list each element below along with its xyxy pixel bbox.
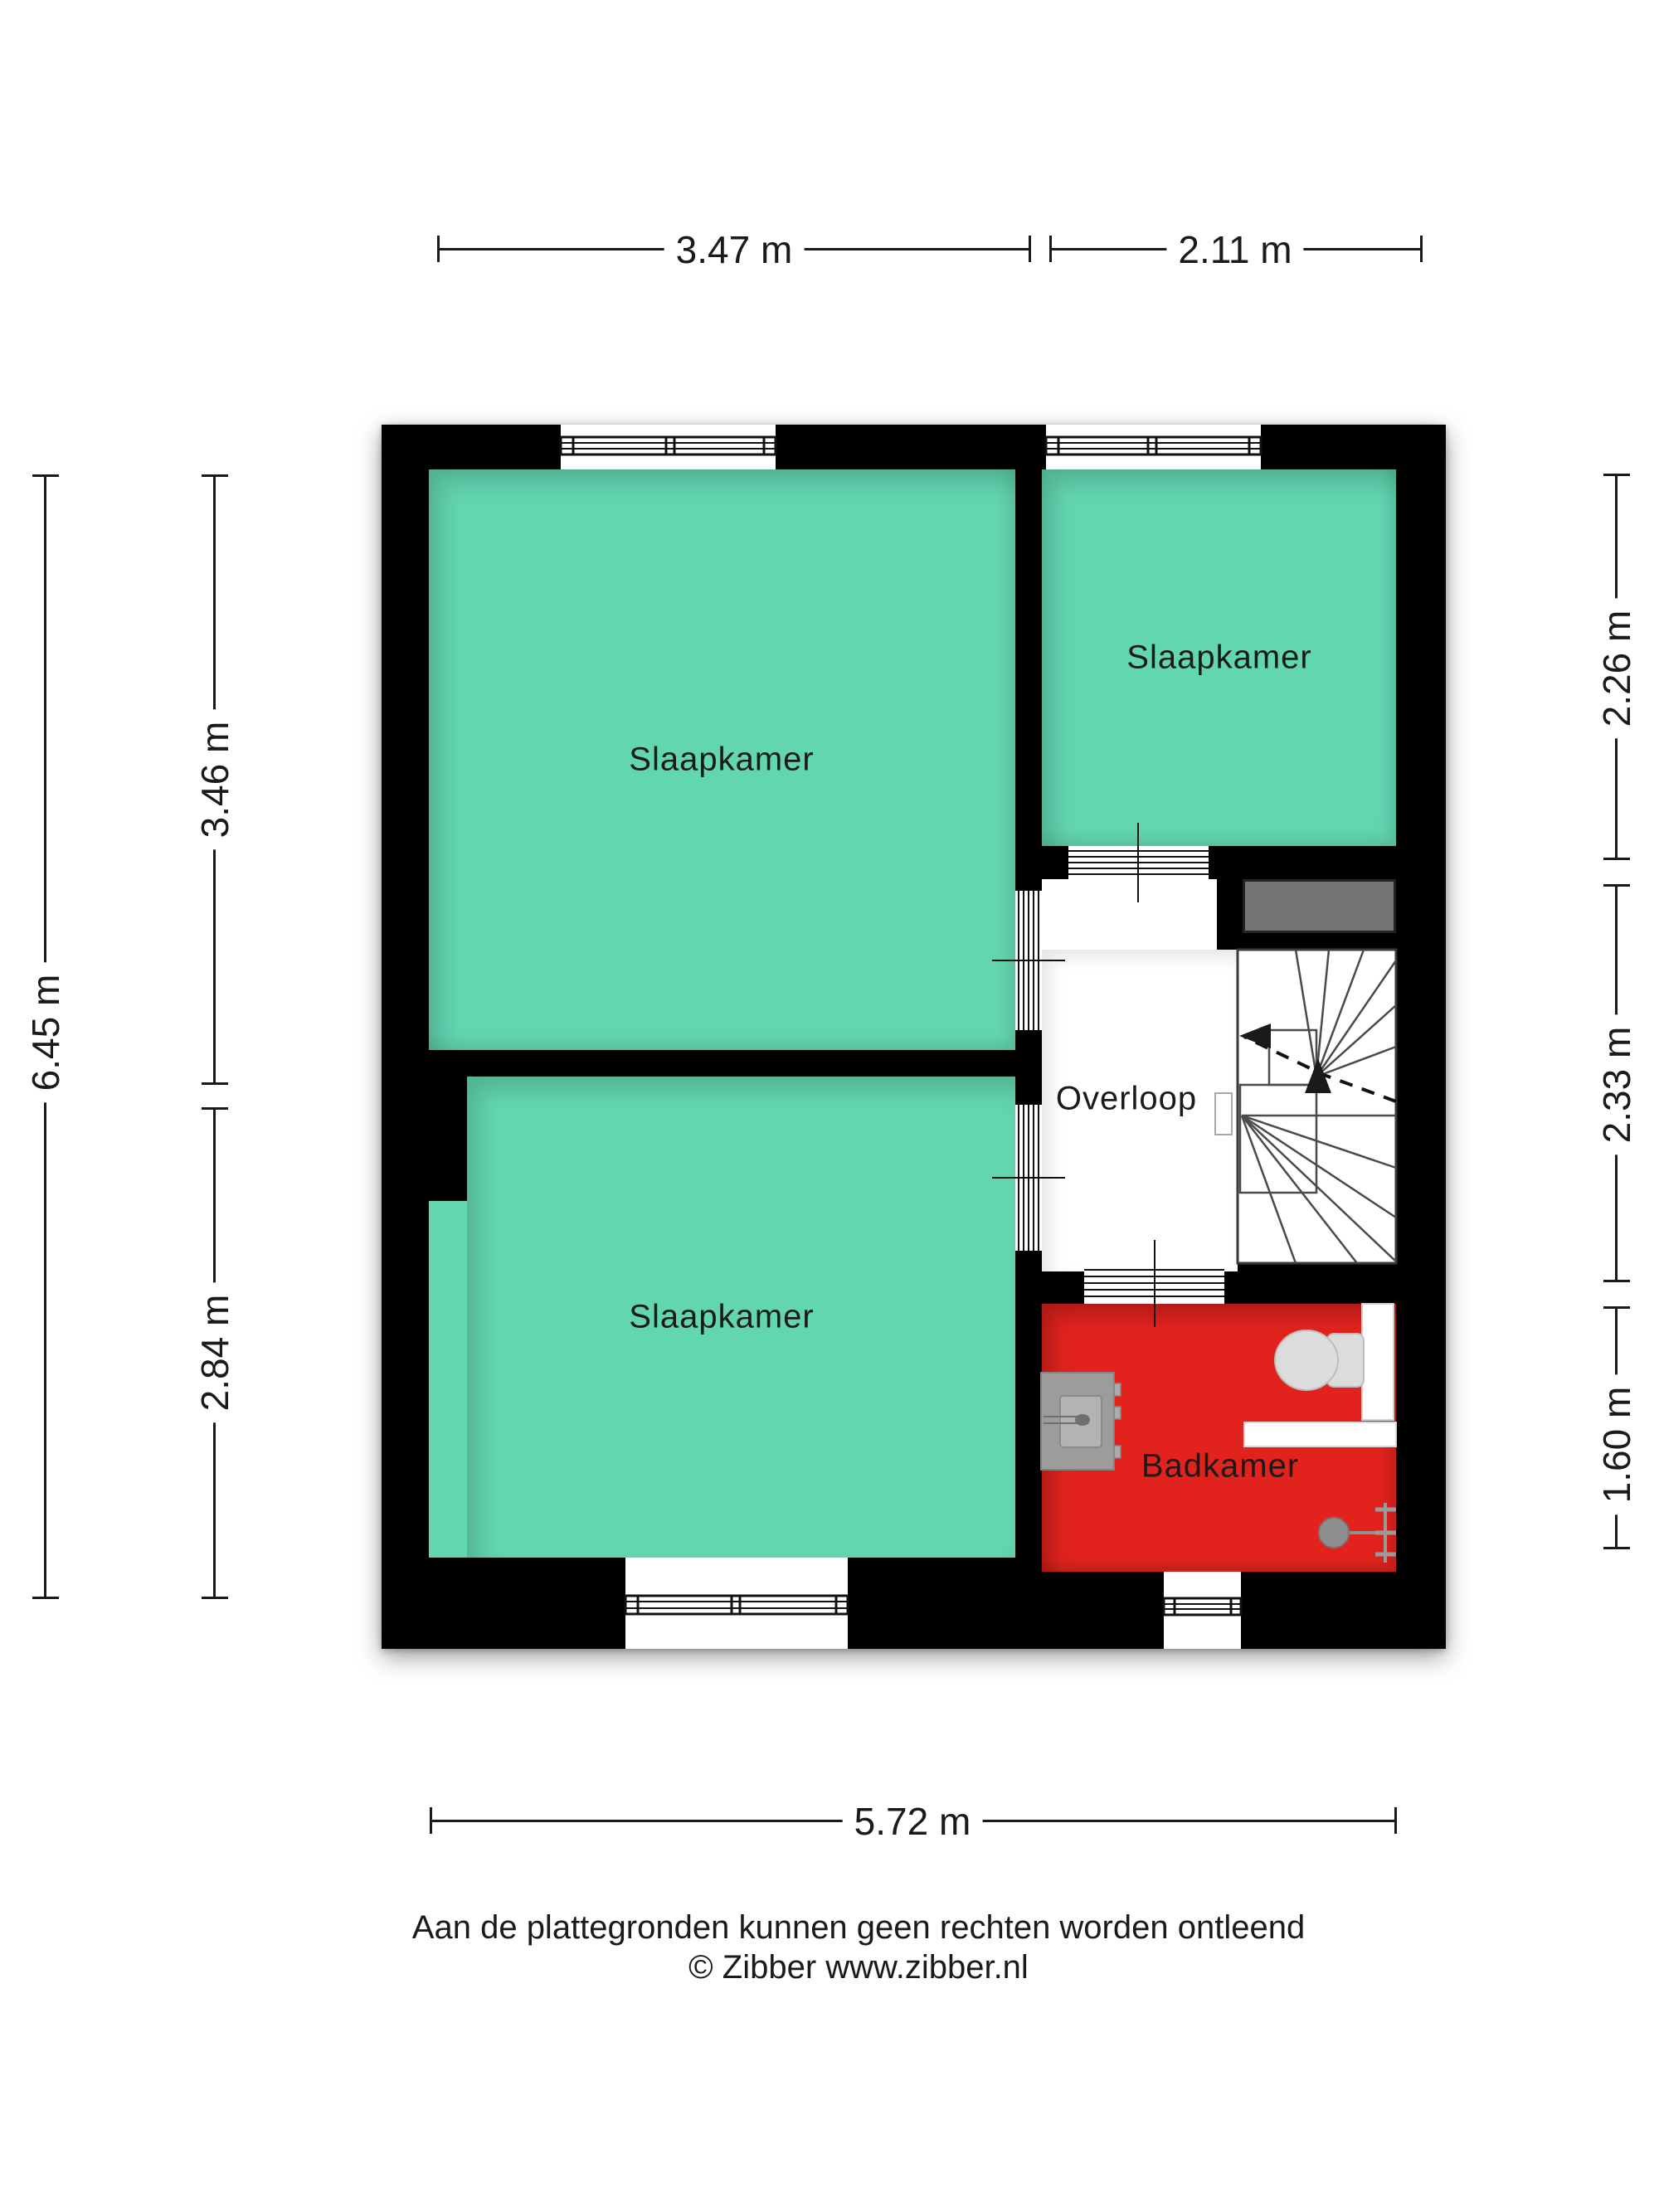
dim-tick [1603, 884, 1630, 887]
dim-tick [32, 474, 59, 477]
storage-block-icon [1243, 879, 1396, 933]
room-landing-upper [1042, 879, 1217, 950]
dim-tick [1603, 474, 1630, 476]
dim-tick [202, 1597, 228, 1599]
disclaimer-text: Aan de plattegronden kunnen geen rechten… [412, 1909, 1305, 1947]
dim-tick [1420, 236, 1423, 262]
window-opening-top-left [561, 425, 776, 469]
dim-label-top-2: 2.11 m [1166, 227, 1303, 272]
dim-tick [32, 1597, 59, 1599]
room-label-bedroom-large: Slaapkamer [629, 741, 814, 779]
dim-tick [202, 474, 228, 477]
room-label-landing: Overloop [1056, 1081, 1197, 1118]
room-label-bedroom-bottom-left: Slaapkamer [629, 1299, 814, 1336]
door-opening-landing-bedroom-large [1015, 891, 1042, 1030]
window-opening-top-right [1046, 425, 1261, 469]
dim-label-left-inner-1: 3.46 m [192, 710, 237, 850]
dim-tick [1049, 236, 1052, 262]
dim-label-right-3: 1.60 m [1594, 1375, 1639, 1515]
door-opening-landing-bathroom [1084, 1263, 1224, 1304]
window-opening-bottom-left [625, 1558, 848, 1649]
dim-tick [202, 1107, 228, 1110]
copyright-text: © Zibber www.zibber.nl [688, 1949, 1029, 1986]
dim-tick [1603, 1280, 1630, 1282]
dim-tick [1029, 236, 1031, 262]
dim-label-right-2: 2.33 m [1594, 1015, 1639, 1155]
door-opening-landing-bedroom-bottom [1015, 1105, 1042, 1251]
window-opening-bathroom [1164, 1572, 1241, 1649]
dim-label-left-outer: 6.45 m [23, 963, 68, 1103]
room-bedroom-bottom-left-strip [429, 1201, 467, 1558]
dim-tick [202, 1082, 228, 1085]
dim-label-top-1: 3.47 m [664, 227, 805, 272]
room-label-bathroom: Badkamer [1141, 1448, 1299, 1485]
dim-tick [1603, 858, 1630, 860]
dim-tick [430, 1807, 432, 1834]
dim-label-left-inner-2: 2.84 m [192, 1283, 237, 1423]
dim-label-bottom: 5.72 m [843, 1799, 983, 1844]
dim-tick [1394, 1807, 1397, 1834]
dim-label-right-1: 2.26 m [1594, 599, 1639, 739]
door-opening-landing-bedroom-top-right [1068, 846, 1209, 879]
dim-tick [437, 236, 440, 262]
room-bathroom [1042, 1304, 1396, 1572]
room-label-bedroom-top-right: Slaapkamer [1126, 639, 1311, 677]
dim-tick [1603, 1306, 1630, 1309]
dim-tick [1603, 1547, 1630, 1549]
floorplan-page: Slaapkamer Slaapkamer Slaapkamer Overloo… [0, 0, 1659, 2212]
